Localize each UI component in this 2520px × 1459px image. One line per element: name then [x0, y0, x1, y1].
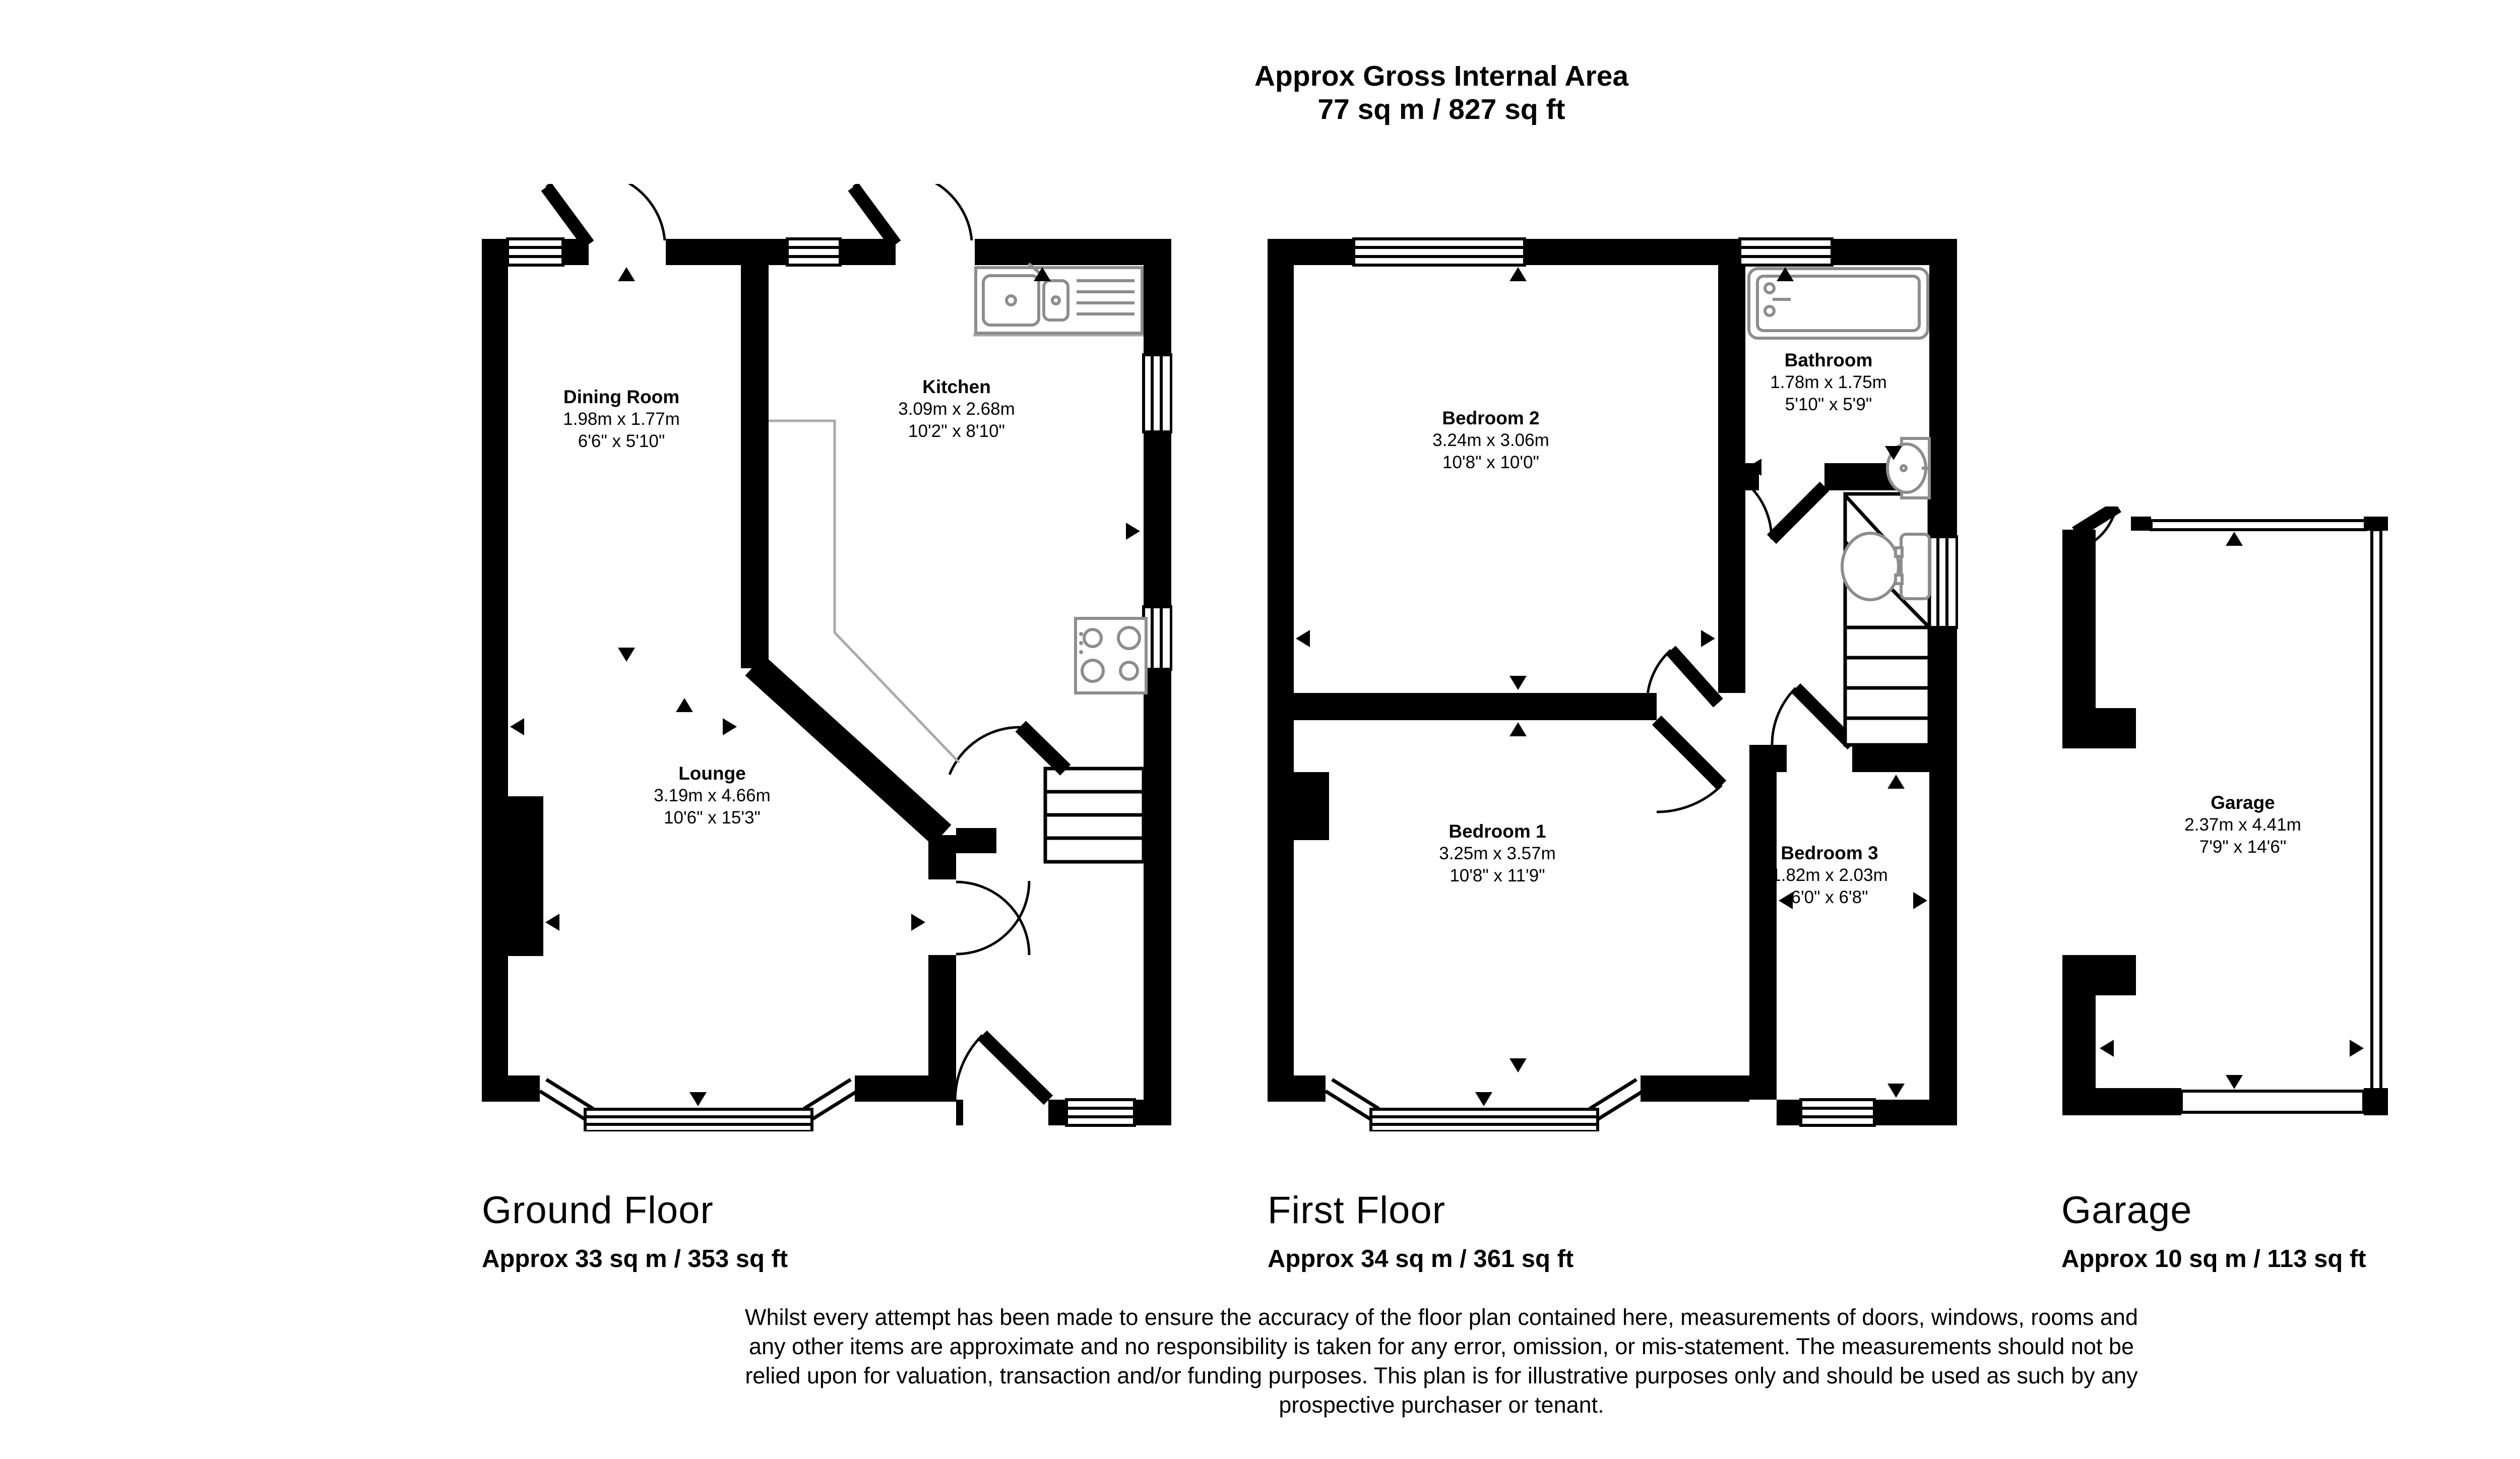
window — [1801, 1100, 1874, 1125]
window — [1144, 607, 1171, 669]
room-label-bathroom: Bathroom 1.78m x 1.75m 5'10" x 5'9" — [1703, 349, 1955, 416]
chimney-breast — [1294, 772, 1329, 840]
disclaimer-line: prospective purchaser or tenant. — [635, 1390, 2248, 1420]
chimney-breast — [508, 796, 543, 956]
stairs — [1845, 494, 1929, 745]
disclaimer-line: Whilst every attempt has been made to en… — [635, 1303, 2248, 1332]
bay-window — [540, 1080, 857, 1131]
window — [1929, 537, 1957, 627]
front-door — [955, 1035, 1048, 1100]
room-label-bedroom-1: Bedroom 1 3.25m x 3.57m 10'8" x 11'9" — [1371, 820, 1623, 887]
door — [1772, 688, 1852, 745]
door — [1657, 720, 1722, 812]
room-label-bedroom-3: Bedroom 3 1.82m x 2.03m 6'0" x 6'8" — [1704, 842, 1956, 909]
door — [853, 184, 972, 244]
door — [546, 184, 665, 244]
toilet-icon — [1842, 533, 1929, 600]
floorplan-page: Approx Gross Internal Area 77 sq m / 827… — [0, 0, 2520, 1459]
window — [1740, 239, 1832, 265]
door — [1647, 650, 1718, 703]
kitchen-sink-icon — [976, 264, 1142, 333]
caption-ground-floor: Ground Floor Approx 33 sq m / 353 sq ft — [482, 1189, 1187, 1273]
gross-area-value: 77 sq m / 827 sq ft — [1139, 93, 1744, 126]
disclaimer-line: any other items are approximate and no r… — [635, 1332, 2248, 1361]
room-label-bedroom-2: Bedroom 2 3.24m x 3.06m 10'8" x 10'0" — [1365, 407, 1617, 474]
disclaimer-line: relied upon for valuation, transaction a… — [635, 1361, 2248, 1390]
page-title: Approx Gross Internal Area 77 sq m / 827… — [1139, 59, 1744, 126]
bay-window — [1326, 1080, 1643, 1131]
first-floor-plan — [1268, 184, 1958, 1131]
window — [1066, 1100, 1135, 1125]
hob-icon — [1076, 618, 1146, 693]
room-label-kitchen: Kitchen 3.09m x 2.68m 10'2" x 8'10" — [831, 375, 1083, 442]
ground-floor-plan — [482, 184, 1172, 1131]
gross-area-title: Approx Gross Internal Area — [1139, 59, 1744, 93]
window — [787, 239, 840, 265]
window — [508, 239, 563, 265]
room-label-dining-room: Dining Room 1.98m x 1.77m 6'6" x 5'10" — [495, 386, 747, 453]
room-label-garage: Garage 2.37m x 4.41m 7'9" x 14'6" — [2117, 791, 2369, 858]
door — [1750, 486, 1824, 539]
window — [1144, 355, 1171, 432]
room-label-lounge: Lounge 3.19m x 4.66m 10'6" x 15'3" — [586, 762, 838, 829]
caption-garage: Garage Approx 10 sq m / 113 sq ft — [2061, 1189, 2520, 1273]
window — [1354, 239, 1525, 265]
bathtub-icon — [1749, 269, 1928, 338]
caption-first-floor: First Floor Approx 34 sq m / 361 sq ft — [1268, 1189, 1973, 1273]
disclaimer-text: Whilst every attempt has been made to en… — [635, 1303, 2248, 1420]
